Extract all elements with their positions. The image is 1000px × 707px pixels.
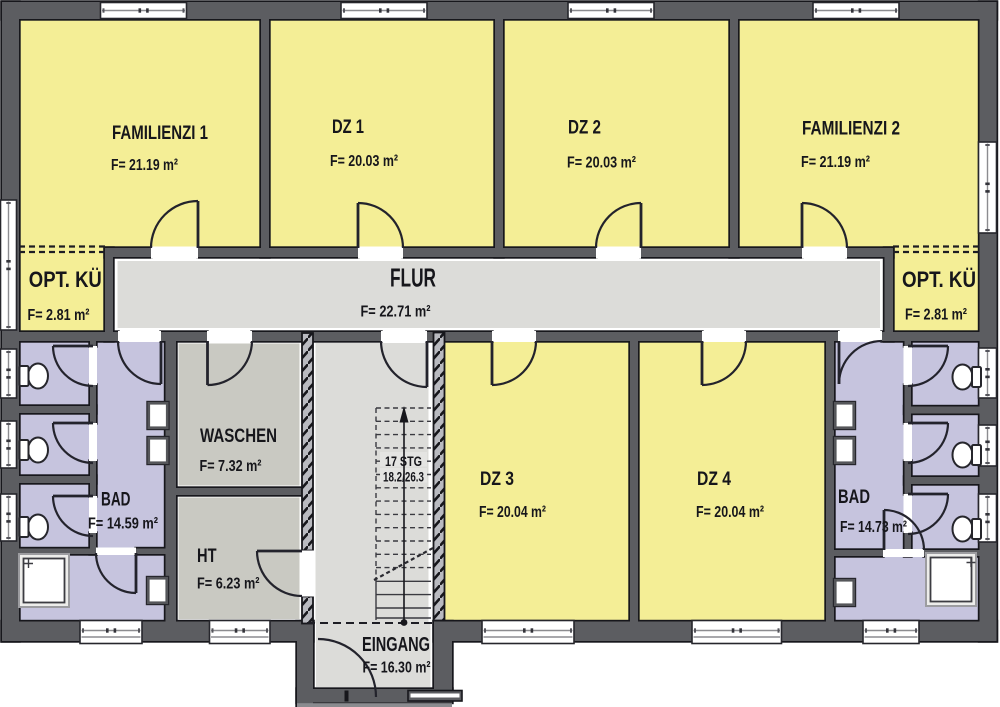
svg-text:F= 20.03 m²: F= 20.03 m² <box>330 153 398 170</box>
svg-text:F= 20.03 m²: F= 20.03 m² <box>567 155 636 172</box>
svg-text:F= 16.30 m²: F= 16.30 m² <box>363 660 431 677</box>
svg-text:F= 21.19 m²: F= 21.19 m² <box>801 154 870 171</box>
svg-text:EINGANG: EINGANG <box>362 634 430 656</box>
svg-text:FAMILIENZI 2: FAMILIENZI 2 <box>802 119 900 140</box>
svg-text:F= 21.19 m²: F= 21.19 m² <box>111 157 178 174</box>
svg-text:OPT. KÜ: OPT. KÜ <box>29 267 102 292</box>
svg-text:BAD: BAD <box>838 487 870 508</box>
svg-text:FAMILIENZI 1: FAMILIENZI 1 <box>112 123 208 144</box>
svg-text:F= 20.04 m²: F= 20.04 m² <box>479 504 546 521</box>
svg-text:18.2/26.3: 18.2/26.3 <box>383 469 424 485</box>
svg-text:HT: HT <box>197 546 217 567</box>
svg-text:DZ 3: DZ 3 <box>480 469 514 490</box>
svg-text:F= 14.59 m²: F= 14.59 m² <box>88 516 158 533</box>
svg-text:F= 2.81 m²: F= 2.81 m² <box>905 307 967 324</box>
svg-text:F= 7.32 m²: F= 7.32 m² <box>200 458 262 475</box>
svg-text:DZ 2: DZ 2 <box>568 118 601 139</box>
svg-text:F= 22.71 m²: F= 22.71 m² <box>361 304 431 321</box>
svg-text:BAD: BAD <box>101 490 131 511</box>
svg-text:FLUR: FLUR <box>390 263 436 293</box>
svg-text:F= 14.73 m²: F= 14.73 m² <box>840 519 907 536</box>
svg-text:F= 20.04 m²: F= 20.04 m² <box>696 504 764 521</box>
svg-text:17 STG: 17 STG <box>385 453 422 469</box>
svg-text:F= 2.81 m²: F= 2.81 m² <box>28 307 90 324</box>
svg-text:DZ 4: DZ 4 <box>697 469 731 490</box>
svg-text:F= 6.23 m²: F= 6.23 m² <box>197 576 260 593</box>
svg-text:WASCHEN: WASCHEN <box>200 426 277 447</box>
svg-text:DZ 1: DZ 1 <box>332 117 364 138</box>
svg-text:OPT. KÜ: OPT. KÜ <box>902 267 976 292</box>
